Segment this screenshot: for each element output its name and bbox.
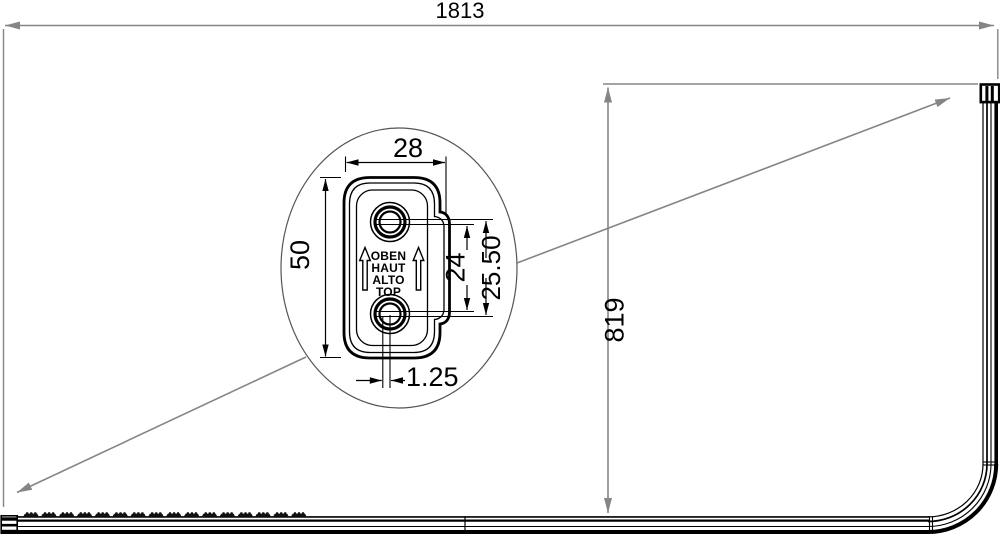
glider-stud <box>184 512 199 517</box>
glider-stud <box>220 512 235 517</box>
leader-line-right <box>517 98 950 263</box>
dim-total-height-label: 819 <box>600 297 630 342</box>
glider-stud <box>41 512 56 517</box>
end-cap-left <box>1 516 17 534</box>
dim-detail-height-label: 50 <box>285 240 315 270</box>
end-cap-top-right <box>981 85 999 103</box>
glider-stud <box>95 512 110 517</box>
up-arrow-icon <box>413 248 424 291</box>
rail-horizontal <box>1 516 933 534</box>
glider-stud <box>256 512 271 517</box>
dim-hole-spacing-outer-label: 25.50 <box>476 235 506 300</box>
bracket-hole-top <box>371 203 410 242</box>
glider-stud <box>113 512 128 517</box>
glider-stud <box>202 512 217 517</box>
rail-corner <box>928 464 996 532</box>
glider-stud <box>273 512 288 517</box>
glider-stud <box>59 512 74 517</box>
glider-stud <box>238 512 253 517</box>
technical-drawing: 1813 819 OBEN HAUT ALTO TOP 28 <box>0 0 1000 534</box>
dim-detail-width <box>346 157 447 215</box>
dim-total-height <box>603 84 978 513</box>
up-arrow-icon <box>360 248 371 291</box>
dim-total-width-label: 1813 <box>436 0 485 23</box>
dim-hole-offset-label: 1.25 <box>406 362 459 392</box>
glider-stud <box>291 512 306 517</box>
glider-stud <box>131 512 146 517</box>
dim-detail-width-label: 28 <box>393 133 423 163</box>
dim-hole-spacing-inner-label: 24 <box>441 252 471 282</box>
glider-stud <box>77 512 92 517</box>
glider-stud <box>148 512 163 517</box>
dim-detail-height <box>320 178 341 358</box>
glider-stud <box>24 512 39 517</box>
glider-stud <box>166 512 181 517</box>
drawing-canvas: 1813 819 OBEN HAUT ALTO TOP 28 <box>0 0 1000 534</box>
leader-line-left <box>17 357 306 493</box>
orientation-marking: OBEN HAUT ALTO TOP <box>360 248 424 300</box>
marking-line-top: TOP <box>376 285 401 299</box>
rail-vertical <box>983 103 998 466</box>
